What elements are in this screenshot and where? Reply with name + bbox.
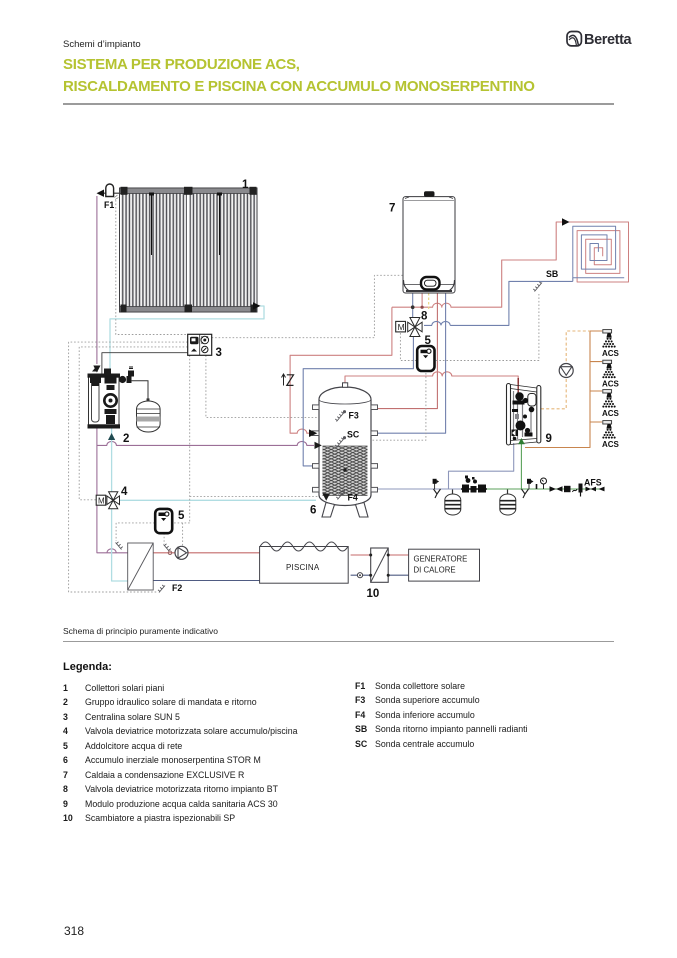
svg-text:ACS: ACS <box>602 349 620 358</box>
svg-text:DI CALORE: DI CALORE <box>414 565 456 574</box>
svg-text:F2: F2 <box>172 583 182 593</box>
svg-text:SB: SB <box>546 269 558 279</box>
svg-text:5: 5 <box>178 510 185 522</box>
svg-text:F4: F4 <box>348 493 358 503</box>
svg-text:5: 5 <box>425 335 432 347</box>
svg-text:GENERATORE: GENERATORE <box>414 554 468 563</box>
svg-text:4: 4 <box>121 486 128 498</box>
svg-text:ACS: ACS <box>602 409 620 418</box>
svg-text:2: 2 <box>123 433 129 445</box>
svg-text:SC: SC <box>347 430 360 440</box>
svg-text:M: M <box>398 322 405 332</box>
svg-text:F3: F3 <box>349 411 359 421</box>
svg-text:3: 3 <box>216 347 222 359</box>
svg-text:M: M <box>98 497 105 506</box>
svg-text:ACS: ACS <box>602 440 620 449</box>
svg-text:9: 9 <box>546 433 552 445</box>
svg-text:AFS: AFS <box>584 478 602 488</box>
svg-text:7: 7 <box>389 203 395 215</box>
svg-text:8: 8 <box>421 311 428 323</box>
svg-text:ACS: ACS <box>602 380 620 389</box>
svg-text:F1: F1 <box>104 200 114 210</box>
svg-text:10: 10 <box>367 588 380 600</box>
svg-text:6: 6 <box>310 505 316 517</box>
svg-text:PISCINA: PISCINA <box>286 563 320 572</box>
svg-text:1: 1 <box>242 179 249 191</box>
